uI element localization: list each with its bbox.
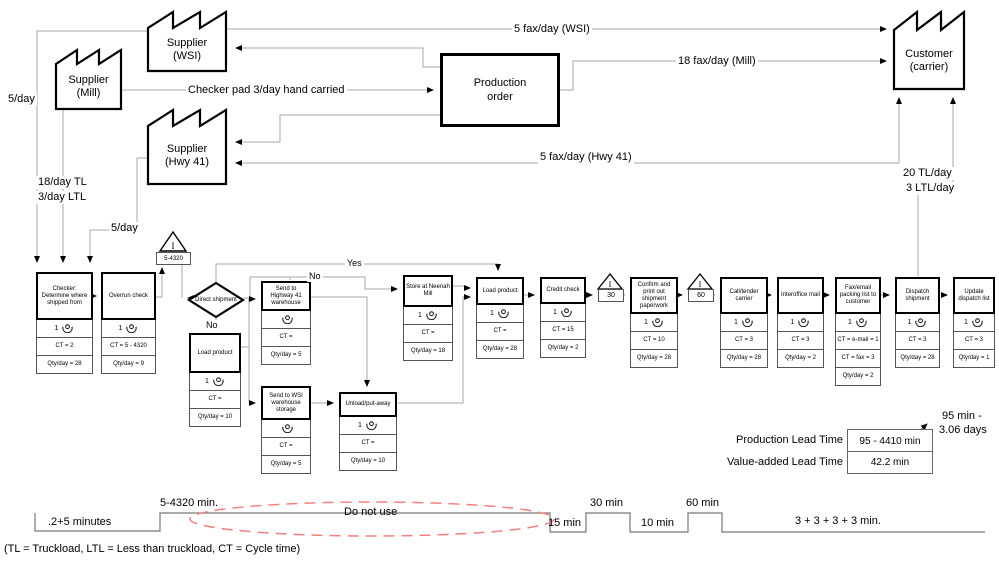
value-added-lead-time-value: 42.2 min (847, 451, 933, 474)
qty-per-day: Qty/day = 5 (261, 456, 311, 474)
decision-label: Direct shipment (188, 282, 244, 318)
lead-time-range-line2: 3.06 days (939, 424, 987, 437)
customer-detail: (carrier) (910, 61, 949, 74)
supplier-hwy41-detail: (Hwy 41) (165, 156, 209, 169)
supplier-hwy41-node: Supplier (Hwy 41) (147, 108, 227, 185)
process-title: Credit check (540, 277, 586, 304)
cycle-time: CT = 5 - 4320 (101, 338, 156, 356)
process-title: Dispatch shipment (895, 277, 940, 314)
process-title: Fax/email packing list to customer (835, 277, 881, 314)
cycle-time: CT = 3 (953, 332, 995, 350)
operator-icon (281, 424, 294, 433)
inventory-symbol: I (172, 241, 175, 251)
label-no-down: No (204, 320, 220, 331)
process-call-tender-carrier: Call/tender carrier 1 CT = 3 Qty/day = 2… (720, 277, 768, 368)
cycle-time: CT = (476, 323, 524, 341)
process-title: Load product (189, 333, 241, 373)
label-hwy41-rate: 5/day (109, 222, 140, 235)
operator-icon (212, 377, 225, 386)
inventory-icon: I (159, 230, 187, 252)
qty-per-day: Qty/day = 1 (953, 350, 995, 368)
timeline-seg-30min: 30 min (590, 497, 623, 510)
operator-icon (61, 324, 74, 333)
operator-icon (855, 318, 868, 327)
qty-per-day: Qty/day = 2 (835, 368, 881, 386)
process-load-product-2: Load product 1 CT = Qty/day = 28 (476, 277, 524, 359)
process-overrun-check: Overrun check 1 CT = 5 - 4320 Qty/day = … (101, 272, 156, 374)
inventory-value-1: 5-4320 (156, 252, 191, 265)
cycle-time: CT = (189, 391, 241, 409)
operator-row (261, 420, 311, 438)
inventory-triangle-1: I (159, 230, 187, 252)
supplier-wsi-node: Supplier (WSI) (147, 10, 227, 72)
label-mill-rate-tl: 18/day TL (36, 176, 89, 189)
process-title: Update dispatch list (953, 277, 995, 314)
process-send-wsi-storage: Send to WSI warehouse storage CT = Qty/d… (261, 386, 311, 474)
operator-row: 1 (540, 304, 586, 322)
qty-per-day: Qty/day = 10 (189, 409, 241, 427)
customer-node: Customer (carrier) (893, 10, 965, 90)
production-order-box: Production order (440, 53, 560, 127)
label-fax-wsi: 5 fax/day (WSI) (512, 23, 592, 36)
operator-icon (741, 318, 754, 327)
operator-row: 1 (720, 314, 768, 332)
cycle-time: CT = 15 (540, 322, 586, 340)
operator-icon (971, 318, 984, 327)
production-lead-time-value: 95 - 4410 min (847, 429, 933, 453)
timeline-seg-15min: 15 min (548, 517, 581, 530)
operator-row: 1 (835, 314, 881, 332)
inventory-value-3: 60 (688, 289, 714, 302)
inventory-symbol: I (699, 280, 702, 289)
operator-row (261, 311, 311, 329)
supplier-mill-node: Supplier (Mill) (55, 48, 122, 110)
qty-per-day: Qty/day = 2 (540, 340, 586, 358)
operator-icon (125, 324, 138, 333)
operator-icon (797, 318, 810, 327)
process-title: Interoffice mail (777, 277, 824, 314)
process-store-neenah-mill: Store at Neenah Mill 1 CT = Qty/day = 18 (403, 275, 453, 361)
label-checker-pad: Checker pad 3/day hand carried (186, 84, 347, 97)
process-update-dispatch-list: Update dispatch list 1 CT = 3 Qty/day = … (953, 277, 995, 368)
vsm-diagram: Supplier (WSI) Supplier (Mill) Supplier … (0, 0, 999, 568)
supplier-mill-name: Supplier (68, 74, 108, 87)
qty-per-day: Qty/day = 28 (36, 356, 93, 374)
do-not-use-label: Do not use (344, 506, 397, 519)
process-dispatch-shipment: Dispatch shipment 1 CT = 3 Qty/day = 28 (895, 277, 940, 368)
operator-row: 1 (777, 314, 824, 332)
customer-name: Customer (905, 48, 953, 61)
qty-per-day: Qty/day = 18 (403, 343, 453, 361)
process-title: Overrun check (101, 272, 156, 320)
cycle-time: CT = 2 (36, 338, 93, 356)
cycle-time: CT = (261, 329, 311, 347)
supplier-mill-detail: (Mill) (77, 87, 101, 100)
cycle-time: CT = 3 (777, 332, 824, 350)
timeline-seg-checker: .2+5 minutes (48, 516, 111, 529)
label-fax-mill: 18 fax/day (Mill) (676, 55, 758, 68)
process-unload-putaway: Unload/put-away 1 CT = Qty/day = 10 (339, 392, 397, 471)
timeline-seg-3333min: 3 + 3 + 3 + 3 min. (795, 515, 881, 528)
inventory-icon: I (687, 272, 713, 290)
value-added-lead-time-label: Value-added Lead Time (690, 456, 843, 469)
supplier-wsi-name: Supplier (167, 37, 207, 50)
operator-icon (560, 308, 573, 317)
qty-per-day: Qty/day = 2 (777, 350, 824, 368)
process-title: Unload/put-away (339, 392, 397, 417)
inventory-triangle-2: I (597, 272, 623, 290)
process-title: Send to Highway 41 warehouse (261, 281, 311, 311)
label-customer-rate-tl: 20 TL/day (901, 167, 954, 180)
operator-row: 1 (339, 417, 397, 435)
cycle-time: CT = 10 (630, 332, 678, 350)
production-lead-time-label: Production Lead Time (700, 434, 843, 447)
inventory-icon: I (597, 272, 623, 290)
inventory-value-2: 30 (598, 289, 624, 302)
cycle-time: CT = (261, 438, 311, 456)
operator-row: 1 (630, 314, 678, 332)
label-fax-hwy41: 5 fax/day (Hwy 41) (538, 151, 634, 164)
production-order-line2: order (487, 90, 513, 104)
process-credit-check: Credit check 1 CT = 15 Qty/day = 2 (540, 277, 586, 358)
operator-row: 1 (895, 314, 940, 332)
cycle-time-fax: CT = fax = 3 (835, 350, 881, 368)
timeline-seg-60min: 60 min (686, 497, 719, 510)
qty-per-day: Qty/day = 9 (101, 356, 156, 374)
process-load-product-1: Load product 1 CT = Qty/day = 10 (189, 333, 241, 427)
label-customer-rate-ltl: 3 LTL/day (904, 182, 956, 195)
operator-row: 1 (101, 320, 156, 338)
qty-per-day: Qty/day = 28 (476, 341, 524, 359)
operator-icon (365, 421, 378, 430)
operator-row: 1 (953, 314, 995, 332)
inventory-triangle-3: I (687, 272, 713, 290)
operator-icon (425, 311, 438, 320)
timeline-seg-overrun: 5-4320 min. (160, 497, 218, 510)
timeline-seg-10min: 10 min (641, 517, 674, 530)
cycle-time: CT = 3 (895, 332, 940, 350)
process-interoffice-mail: Interoffice mail 1 CT = 3 Qty/day = 2 (777, 277, 824, 368)
cycle-time: CT = (339, 435, 397, 453)
operator-row: 1 (189, 373, 241, 391)
label-no-branch: No (307, 271, 323, 282)
cycle-time: CT = (403, 325, 453, 343)
supplier-wsi-detail: (WSI) (173, 50, 201, 63)
qty-per-day: Qty/day = 10 (339, 453, 397, 471)
label-yes: Yes (345, 258, 364, 269)
qty-per-day: Qty/day = 28 (720, 350, 768, 368)
qty-per-day: Qty/day = 28 (895, 350, 940, 368)
process-title: Call/tender carrier (720, 277, 768, 314)
operator-icon (914, 318, 927, 327)
production-order-line1: Production (474, 76, 527, 90)
operator-row: 1 (476, 305, 524, 323)
inventory-symbol: I (609, 280, 612, 289)
process-title: Store at Neenah Mill (403, 275, 453, 307)
process-checker: Checker: Determine where shipped from 1 … (36, 272, 93, 374)
operator-icon (497, 309, 510, 318)
process-title: Confirm and print out shipment paperwork (630, 277, 678, 314)
operator-icon (281, 315, 294, 324)
label-wsi-rate: 5/day (6, 93, 37, 106)
operator-row: 1 (403, 307, 453, 325)
lead-time-range-line1: 95 min - (942, 410, 982, 423)
operator-row: 1 (36, 320, 93, 338)
qty-per-day: Qty/day = 5 (261, 347, 311, 365)
process-send-highway41-warehouse: Send to Highway 41 warehouse CT = Qty/da… (261, 281, 311, 365)
cycle-time-email: CT = e-mail = 1 (835, 332, 881, 350)
qty-per-day: Qty/day = 28 (630, 350, 678, 368)
process-title: Checker: Determine where shipped from (36, 272, 93, 320)
cycle-time: CT = 3 (720, 332, 768, 350)
process-title: Load product (476, 277, 524, 305)
label-mill-rate-ltl: 3/day LTL (36, 191, 88, 204)
supplier-hwy41-name: Supplier (167, 143, 207, 156)
footnote: (TL = Truckload, LTL = Less than trucklo… (4, 543, 300, 556)
process-confirm-paperwork: Confirm and print out shipment paperwork… (630, 277, 678, 368)
operator-icon (651, 318, 664, 327)
process-title: Send to WSI warehouse storage (261, 386, 311, 420)
decision-direct-shipment: Direct shipment (188, 282, 244, 318)
process-fax-email-packing-list: Fax/email packing list to customer 1 CT … (835, 277, 881, 386)
